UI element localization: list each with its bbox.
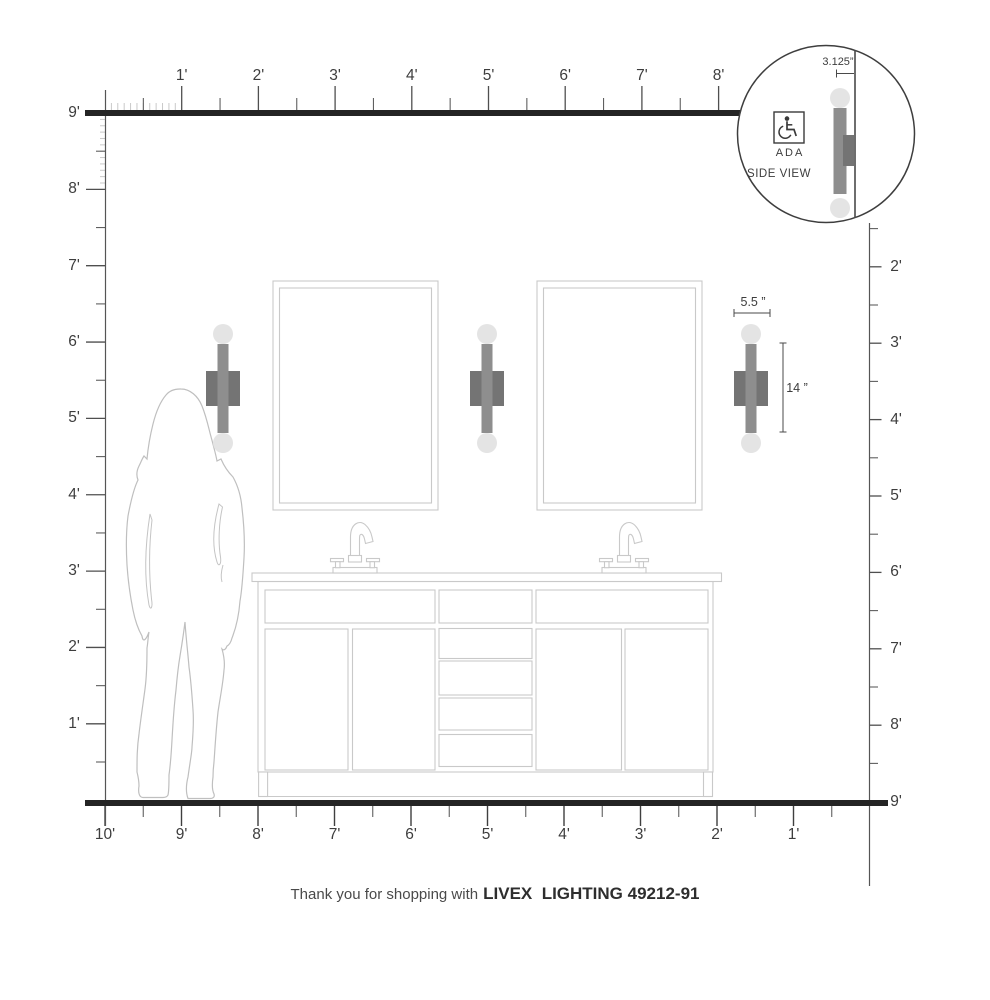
sconce-right: [734, 324, 768, 453]
mirror-right: [537, 281, 702, 510]
faucet-handle-stem: [336, 562, 341, 568]
cabinet-leg: [704, 772, 713, 797]
cabinet-door: [265, 629, 348, 770]
faucet-collar: [618, 556, 631, 563]
mirror-left: [273, 281, 438, 510]
drawer-front: [536, 590, 708, 623]
faucet-base: [602, 568, 646, 574]
sconce-bulb: [741, 324, 761, 344]
detail-dimension-label: 3.125”: [822, 56, 853, 68]
cabinet-door: [536, 629, 622, 770]
fixture-width-label: 5.5 ”: [740, 295, 765, 309]
cabinet-leg: [259, 772, 268, 797]
caption-prefix: Thank you for shopping with: [291, 886, 479, 903]
drawer-front: [265, 590, 435, 623]
diagram-canvas: [0, 0, 990, 1000]
countertop: [252, 573, 722, 582]
faucet-collar: [349, 556, 362, 563]
detail-circle: [738, 46, 915, 223]
vanity-cabinet: [252, 573, 722, 797]
sconce-bulb: [741, 433, 761, 453]
sconce-left: [206, 324, 240, 453]
sconce-bulb: [477, 324, 497, 344]
sconce-bulb: [830, 198, 850, 218]
fixture-height-label: 14 ”: [786, 381, 808, 395]
width-dimension-line: [734, 309, 770, 317]
left-ruler-minor-ticks: [96, 151, 105, 762]
faucet-handle-stem: [605, 562, 610, 568]
center-drawer: [439, 735, 532, 767]
faucet-right: [600, 523, 649, 573]
sconce-bulb: [830, 88, 850, 108]
faucet-left: [331, 523, 380, 573]
sconce-mount: [843, 135, 854, 166]
faucet-handle-stem: [370, 562, 375, 568]
sconce-bulb: [213, 324, 233, 344]
sconce-center: [470, 324, 504, 453]
sconce-bulb: [477, 433, 497, 453]
sconce-bulb: [213, 433, 233, 453]
cabinet-door: [353, 629, 436, 770]
drawer-front: [439, 590, 532, 623]
sconce-body: [746, 344, 757, 433]
caption: Thank you for shopping withLIVEX LIGHTIN…: [0, 884, 990, 904]
sconce-body: [482, 344, 493, 433]
center-drawer: [439, 698, 532, 730]
center-drawer: [439, 629, 532, 659]
product-dimension-diagram: 1'2'3'4'5'6'7'8' 9'8'7'6'5'4'3'2'1' 2'3'…: [0, 0, 990, 1000]
faucet-handle-stem: [639, 562, 644, 568]
ada-label: ADA: [776, 147, 805, 159]
center-drawer: [439, 661, 532, 695]
sconce-body: [218, 344, 229, 433]
detail-circle-outline: [738, 46, 915, 223]
caption-brand: LIVEX LIGHTING 49212-91: [483, 884, 699, 903]
faucet-base: [333, 568, 377, 574]
cabinet-door: [625, 629, 708, 770]
side-view-label: SIDE VIEW: [747, 168, 811, 180]
